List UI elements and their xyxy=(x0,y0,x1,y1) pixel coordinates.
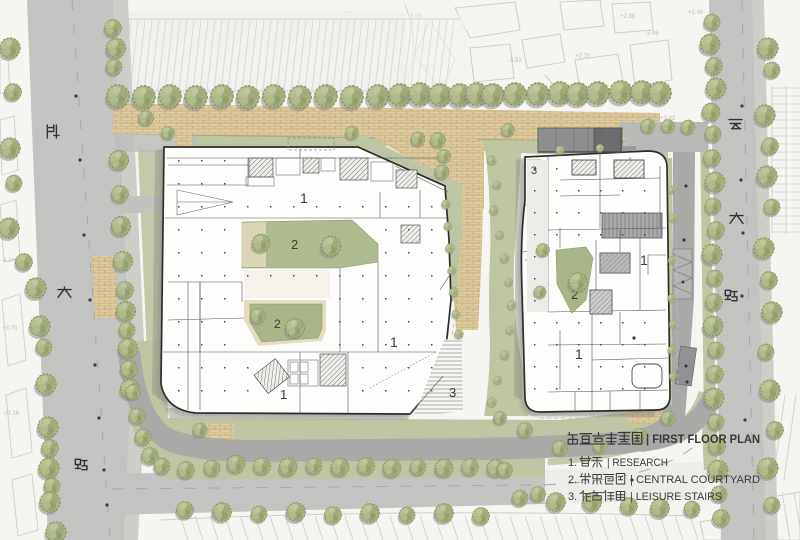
svg-text:+3.18: +3.18 xyxy=(4,411,20,417)
svg-text:+2.96: +2.96 xyxy=(620,14,636,20)
svg-text:| RESEARCH: | RESEARCH xyxy=(607,457,668,469)
svg-text:1.: 1. xyxy=(568,457,577,469)
svg-text:1: 1 xyxy=(280,387,287,402)
svg-text:| LEISURE STAIRS: | LEISURE STAIRS xyxy=(630,491,722,503)
svg-text:2: 2 xyxy=(291,237,298,252)
svg-text:-3.46: -3.46 xyxy=(645,31,659,37)
svg-text:1: 1 xyxy=(575,346,583,362)
svg-text:1: 1 xyxy=(300,190,308,206)
svg-text:+3.70: +3.70 xyxy=(2,326,18,332)
svg-text:-3.82: -3.82 xyxy=(508,58,522,64)
svg-text:| FIRST FLOOR PLAN: | FIRST FLOOR PLAN xyxy=(646,432,760,446)
svg-text:+2.96: +2.96 xyxy=(688,10,704,16)
svg-text:2: 2 xyxy=(274,317,281,331)
svg-text:3.: 3. xyxy=(568,491,577,503)
svg-text:| CENTRAL COURTYARD: | CENTRAL COURTYARD xyxy=(630,474,760,486)
svg-text:2.: 2. xyxy=(568,474,577,486)
svg-text:+2.70: +2.70 xyxy=(575,54,591,60)
svg-text:1: 1 xyxy=(640,252,648,268)
svg-text:1: 1 xyxy=(390,334,398,350)
svg-text:3: 3 xyxy=(531,165,537,177)
svg-text:3: 3 xyxy=(449,385,456,400)
